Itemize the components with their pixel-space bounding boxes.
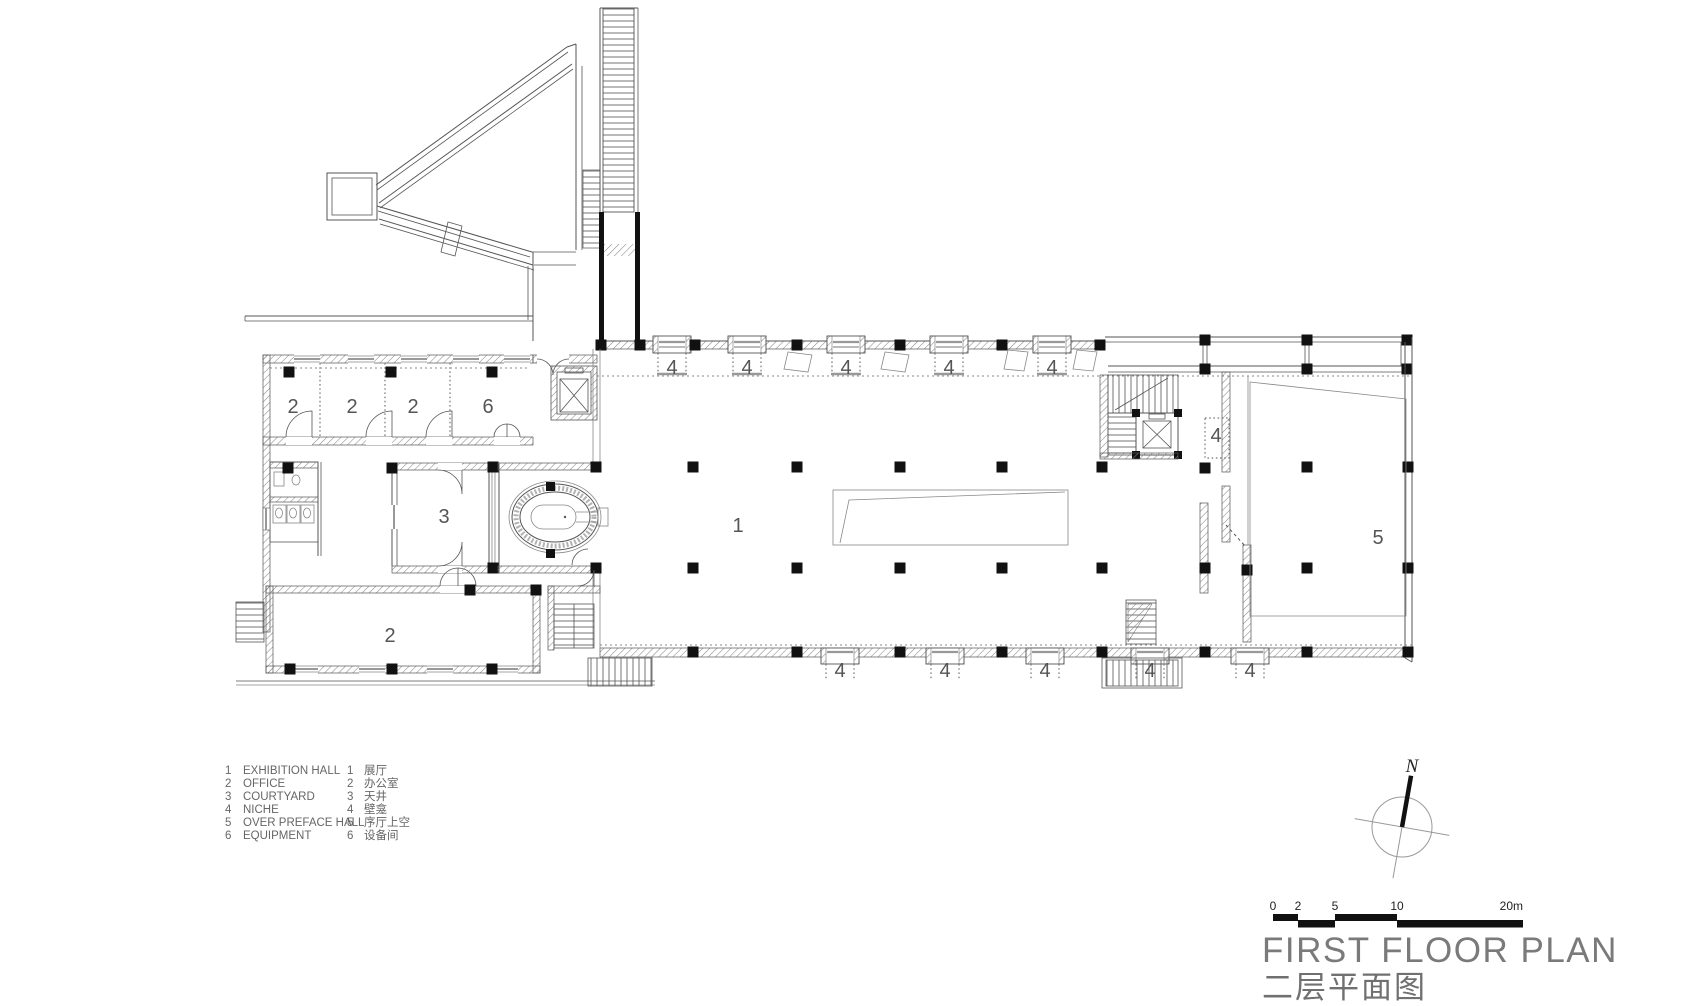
legend-label: EXHIBITION HALL [243, 765, 341, 777]
room-label: 4 [840, 357, 851, 379]
room-label: 4 [1046, 357, 1057, 379]
scale-bar: 0251020m [1270, 899, 1523, 928]
sash-window [784, 352, 812, 372]
legend-number: 1 [347, 765, 353, 777]
room-label: 5 [1372, 527, 1383, 549]
oval-feature [498, 462, 608, 574]
legend-number: 1 [225, 765, 231, 777]
toilet-block [263, 462, 321, 556]
room-label: 1 [732, 515, 743, 537]
legend-number: 5 [225, 817, 231, 829]
legend-number: 2 [347, 778, 353, 790]
room-label: 4 [666, 357, 677, 379]
door-arc [572, 549, 588, 565]
room-label: 2 [407, 396, 418, 418]
title-block: FIRST FLOOR PLAN 二层平面图 [1262, 931, 1618, 1005]
door-arc [426, 411, 452, 437]
legend-label: NICHE [243, 804, 279, 816]
legend-number: 4 [225, 804, 232, 816]
room-label: 4 [1244, 660, 1255, 682]
exhibition-hall-interior [591, 462, 1414, 574]
double-height-outline [1250, 382, 1406, 616]
scale-tick: 2 [1295, 899, 1302, 913]
sash-window [1004, 350, 1028, 371]
room-label: 3 [438, 506, 449, 528]
elevator-lobby [533, 354, 597, 420]
stairwell-southwest [548, 570, 600, 650]
room-label: 4 [943, 357, 954, 379]
sash-window [1073, 350, 1097, 371]
room-label: 2 [384, 625, 395, 647]
left-canopy [245, 316, 533, 321]
room-label: 6 [482, 396, 493, 418]
floor-opening [833, 490, 1068, 545]
legend-label: COURTYARD [243, 791, 315, 803]
scale-tick: 0 [1270, 899, 1277, 913]
legend-number: 6 [225, 830, 231, 842]
legend-number: 2 [225, 778, 231, 790]
sheet-title-en: FIRST FLOOR PLAN [1262, 931, 1618, 970]
room-label: 4 [1210, 425, 1221, 447]
legend-number: 3 [225, 791, 231, 803]
legend-number: 5 [347, 817, 353, 829]
legend-label: OFFICE [243, 778, 285, 790]
legend-number: 4 [347, 804, 354, 816]
door-arc [366, 411, 392, 437]
scale-tick: 5 [1332, 899, 1339, 913]
exterior-south-stairs [588, 658, 1182, 688]
drawing-sheet: 2226444443145244444 1EXHIBITION HALL2OFF… [0, 0, 1700, 1006]
legend-label: EQUIPMENT [243, 830, 311, 842]
floor-plan-drawing: 2226444443145244444 1EXHIBITION HALL2OFF… [0, 0, 1700, 1006]
scale-tick: 10 [1390, 899, 1404, 913]
legend-label: 天井 [364, 789, 387, 803]
legend-label: 壁龛 [364, 802, 387, 816]
room-label: 2 [287, 396, 298, 418]
legend-number: 3 [347, 791, 353, 803]
sheet-title-zh: 二层平面图 [1262, 970, 1427, 1005]
stair-core-east [1100, 375, 1182, 459]
scale-tick: 20m [1500, 899, 1523, 913]
room-label: 4 [834, 660, 845, 682]
exterior-stair [236, 602, 264, 642]
legend-label: 展厅 [364, 764, 387, 777]
room-label: 4 [1039, 660, 1050, 682]
room-label: 4 [1144, 660, 1155, 682]
north-label: N [1405, 756, 1420, 777]
legend-label: 办公室 [364, 776, 399, 790]
door-arc [438, 470, 462, 494]
entry-ramp-structure [327, 8, 640, 342]
legend-number: 6 [347, 830, 353, 842]
room-label: 2 [346, 396, 357, 418]
room-labels: 2226444443145244444 [287, 357, 1383, 682]
room-label: 4 [741, 357, 752, 379]
door-arc [438, 542, 462, 566]
sash-window [881, 352, 909, 372]
legend-label: 序厅上空 [364, 815, 410, 829]
room-label: 4 [939, 660, 950, 682]
legend: 1EXHIBITION HALL2OFFICE3COURTYARD4NICHE5… [225, 764, 410, 842]
legend-label: 设备间 [364, 828, 399, 842]
north-arrow: N [1346, 756, 1459, 887]
door-arc [494, 424, 520, 437]
